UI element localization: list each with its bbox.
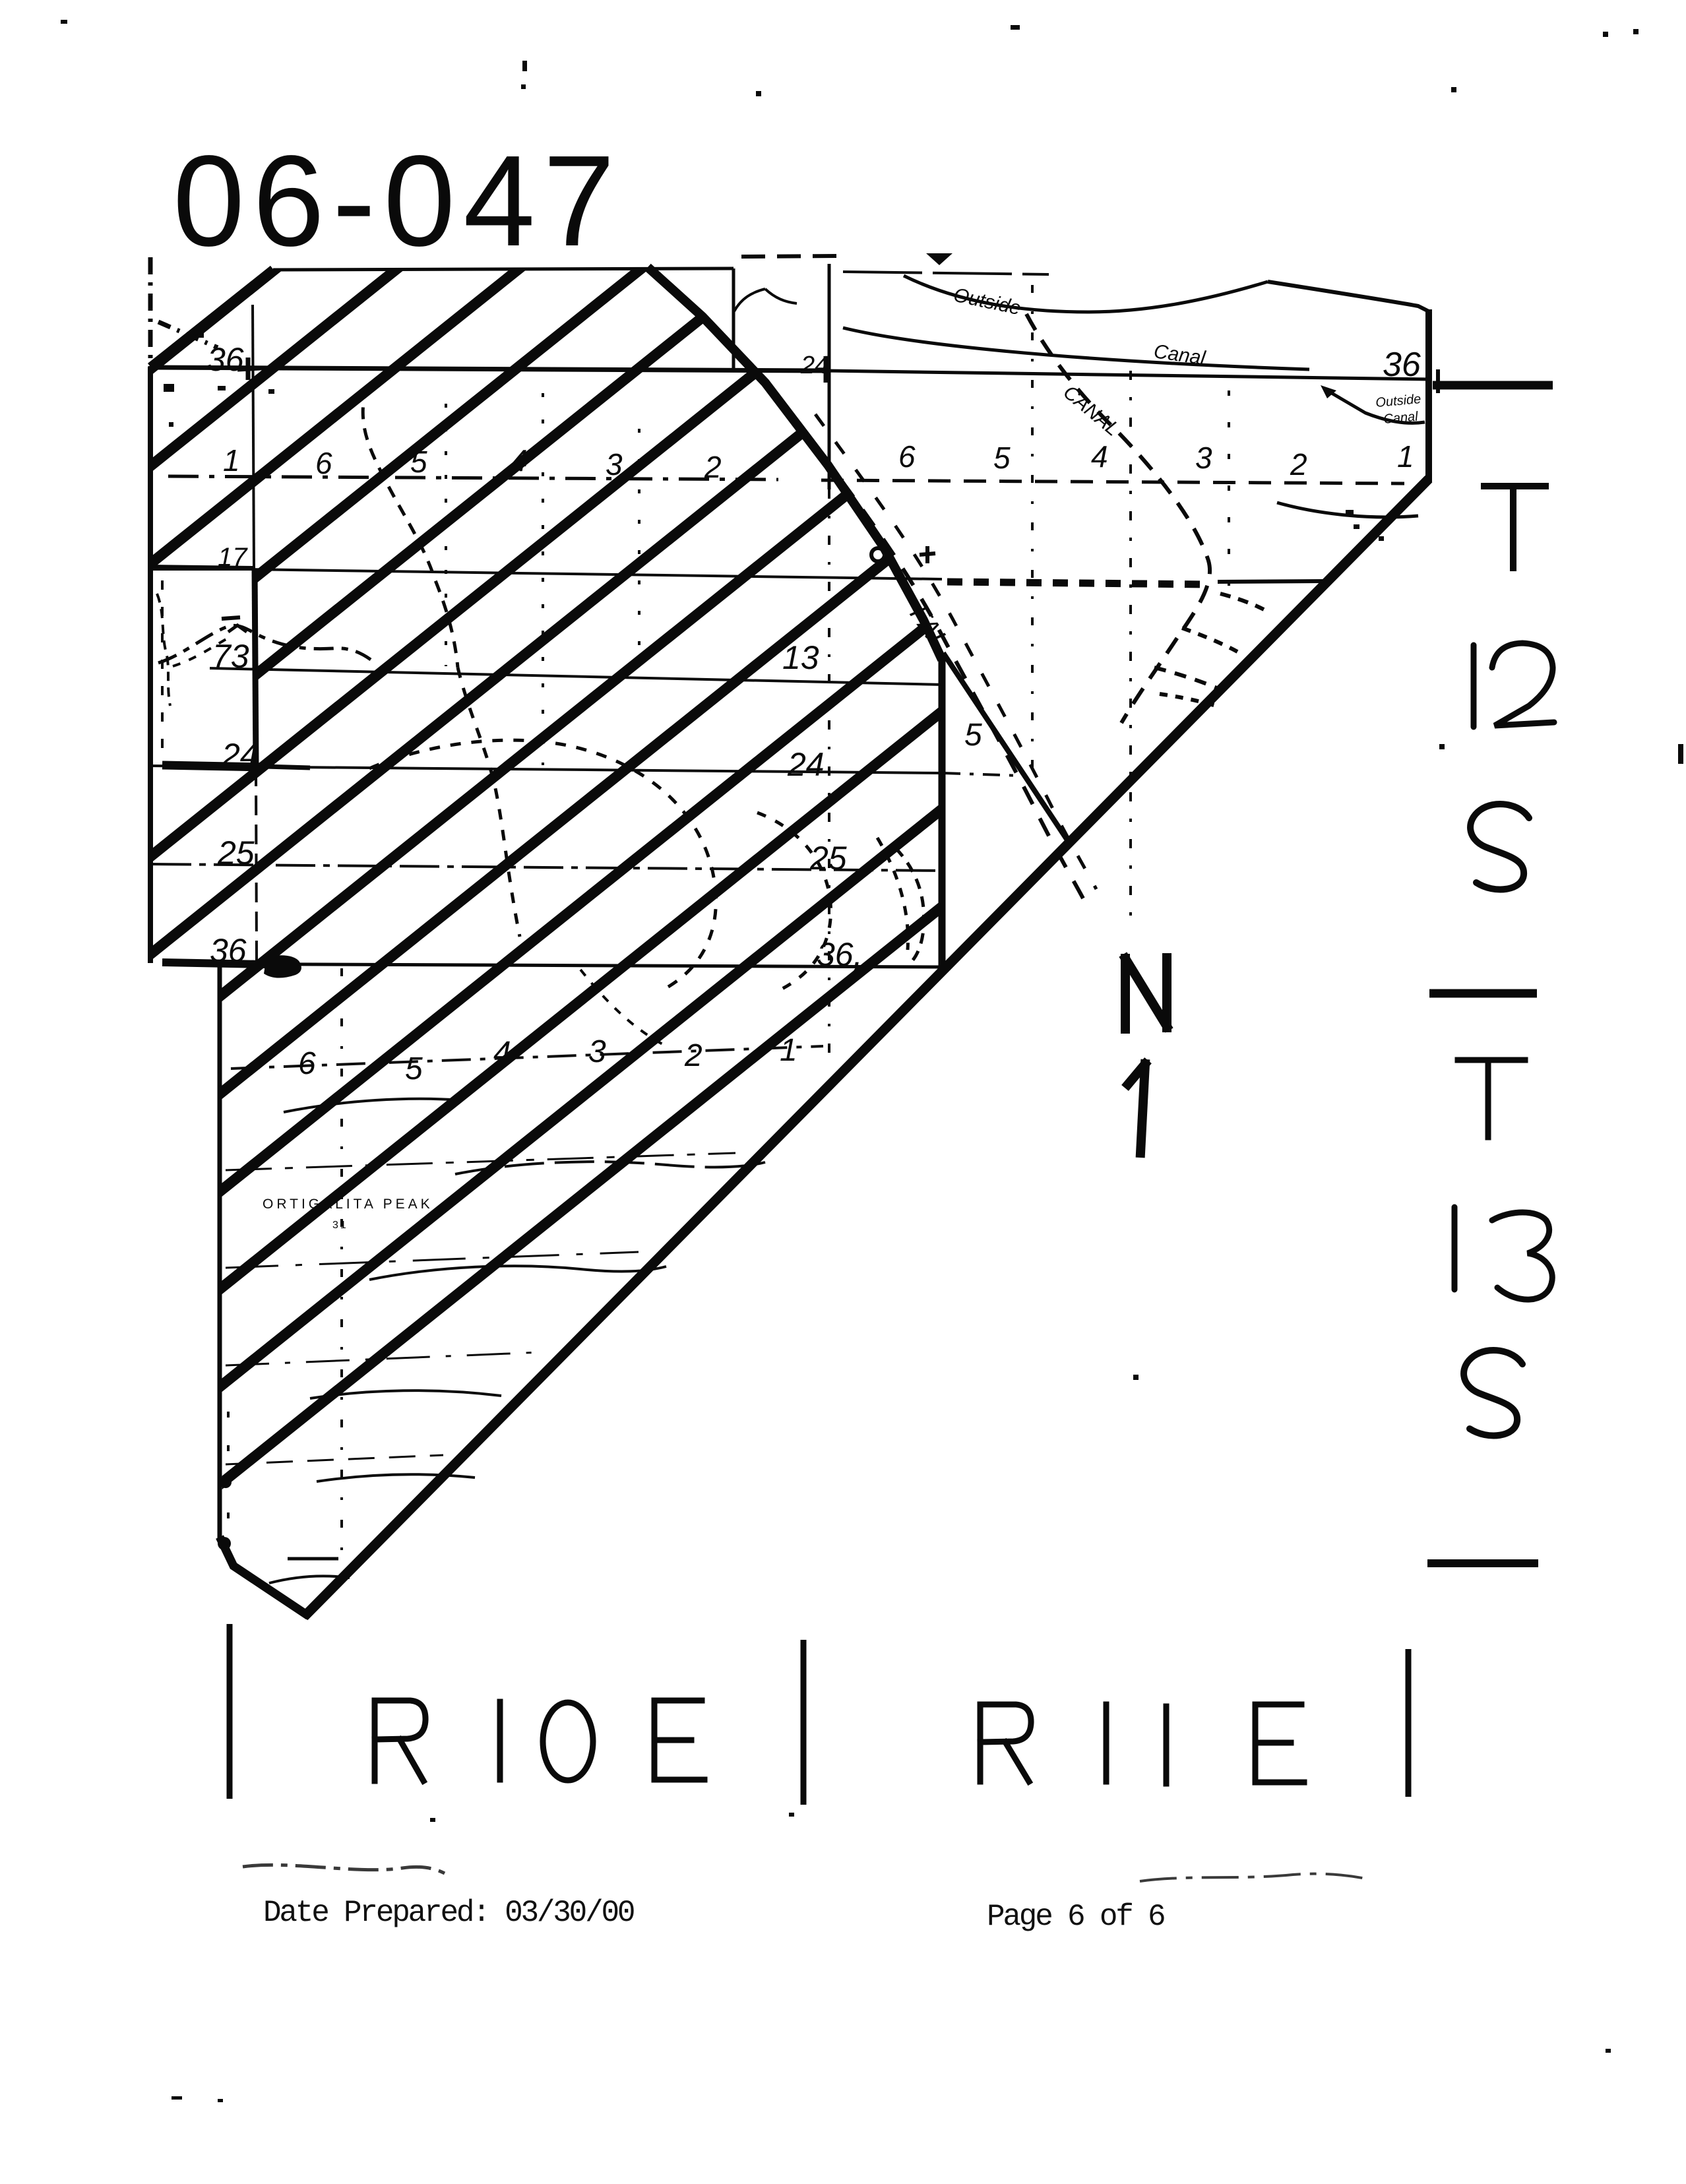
svg-text:6: 6 — [298, 1046, 316, 1081]
svg-text:6: 6 — [898, 439, 916, 474]
svg-text:2: 2 — [684, 1038, 702, 1073]
svg-text:24: 24 — [221, 737, 259, 774]
svg-text:31: 31 — [332, 1220, 348, 1231]
svg-text:06-047: 06-047 — [173, 129, 623, 273]
svg-text:13: 13 — [782, 639, 819, 676]
svg-text:4: 4 — [493, 1036, 511, 1071]
svg-text:5: 5 — [993, 441, 1011, 475]
svg-text:25: 25 — [217, 834, 255, 871]
svg-text:3: 3 — [1195, 441, 1212, 475]
svg-text:36: 36 — [210, 932, 247, 969]
svg-text:17: 17 — [218, 543, 248, 572]
svg-text:3: 3 — [606, 447, 623, 482]
svg-text:Date Prepared: 03/30/00: Date Prepared: 03/30/00 — [263, 1896, 634, 1930]
svg-text:36,: 36, — [817, 936, 863, 973]
svg-text:ORTIGALITA PEAK: ORTIGALITA PEAK — [263, 1197, 433, 1212]
svg-text:Page 6 of 6: Page 6 of 6 — [987, 1900, 1164, 1934]
svg-text:1: 1 — [223, 443, 240, 478]
svg-text:4: 4 — [511, 443, 528, 478]
svg-text:2: 2 — [704, 450, 722, 484]
svg-text:36: 36 — [207, 341, 244, 378]
svg-text:5: 5 — [964, 718, 982, 753]
svg-text:Canal: Canal — [1383, 409, 1420, 427]
svg-text:1: 1 — [780, 1033, 797, 1068]
svg-text:73: 73 — [212, 638, 249, 675]
svg-text:6: 6 — [315, 446, 332, 480]
svg-text:5: 5 — [410, 445, 427, 479]
svg-text:2: 2 — [1290, 447, 1307, 482]
svg-text:1: 1 — [1397, 439, 1414, 474]
svg-text:25: 25 — [809, 840, 847, 877]
svg-text:3: 3 — [588, 1034, 606, 1069]
svg-text:5: 5 — [405, 1051, 423, 1086]
svg-text:36: 36 — [1383, 346, 1421, 384]
svg-text:24: 24 — [787, 746, 825, 783]
svg-text:4: 4 — [1091, 439, 1108, 474]
